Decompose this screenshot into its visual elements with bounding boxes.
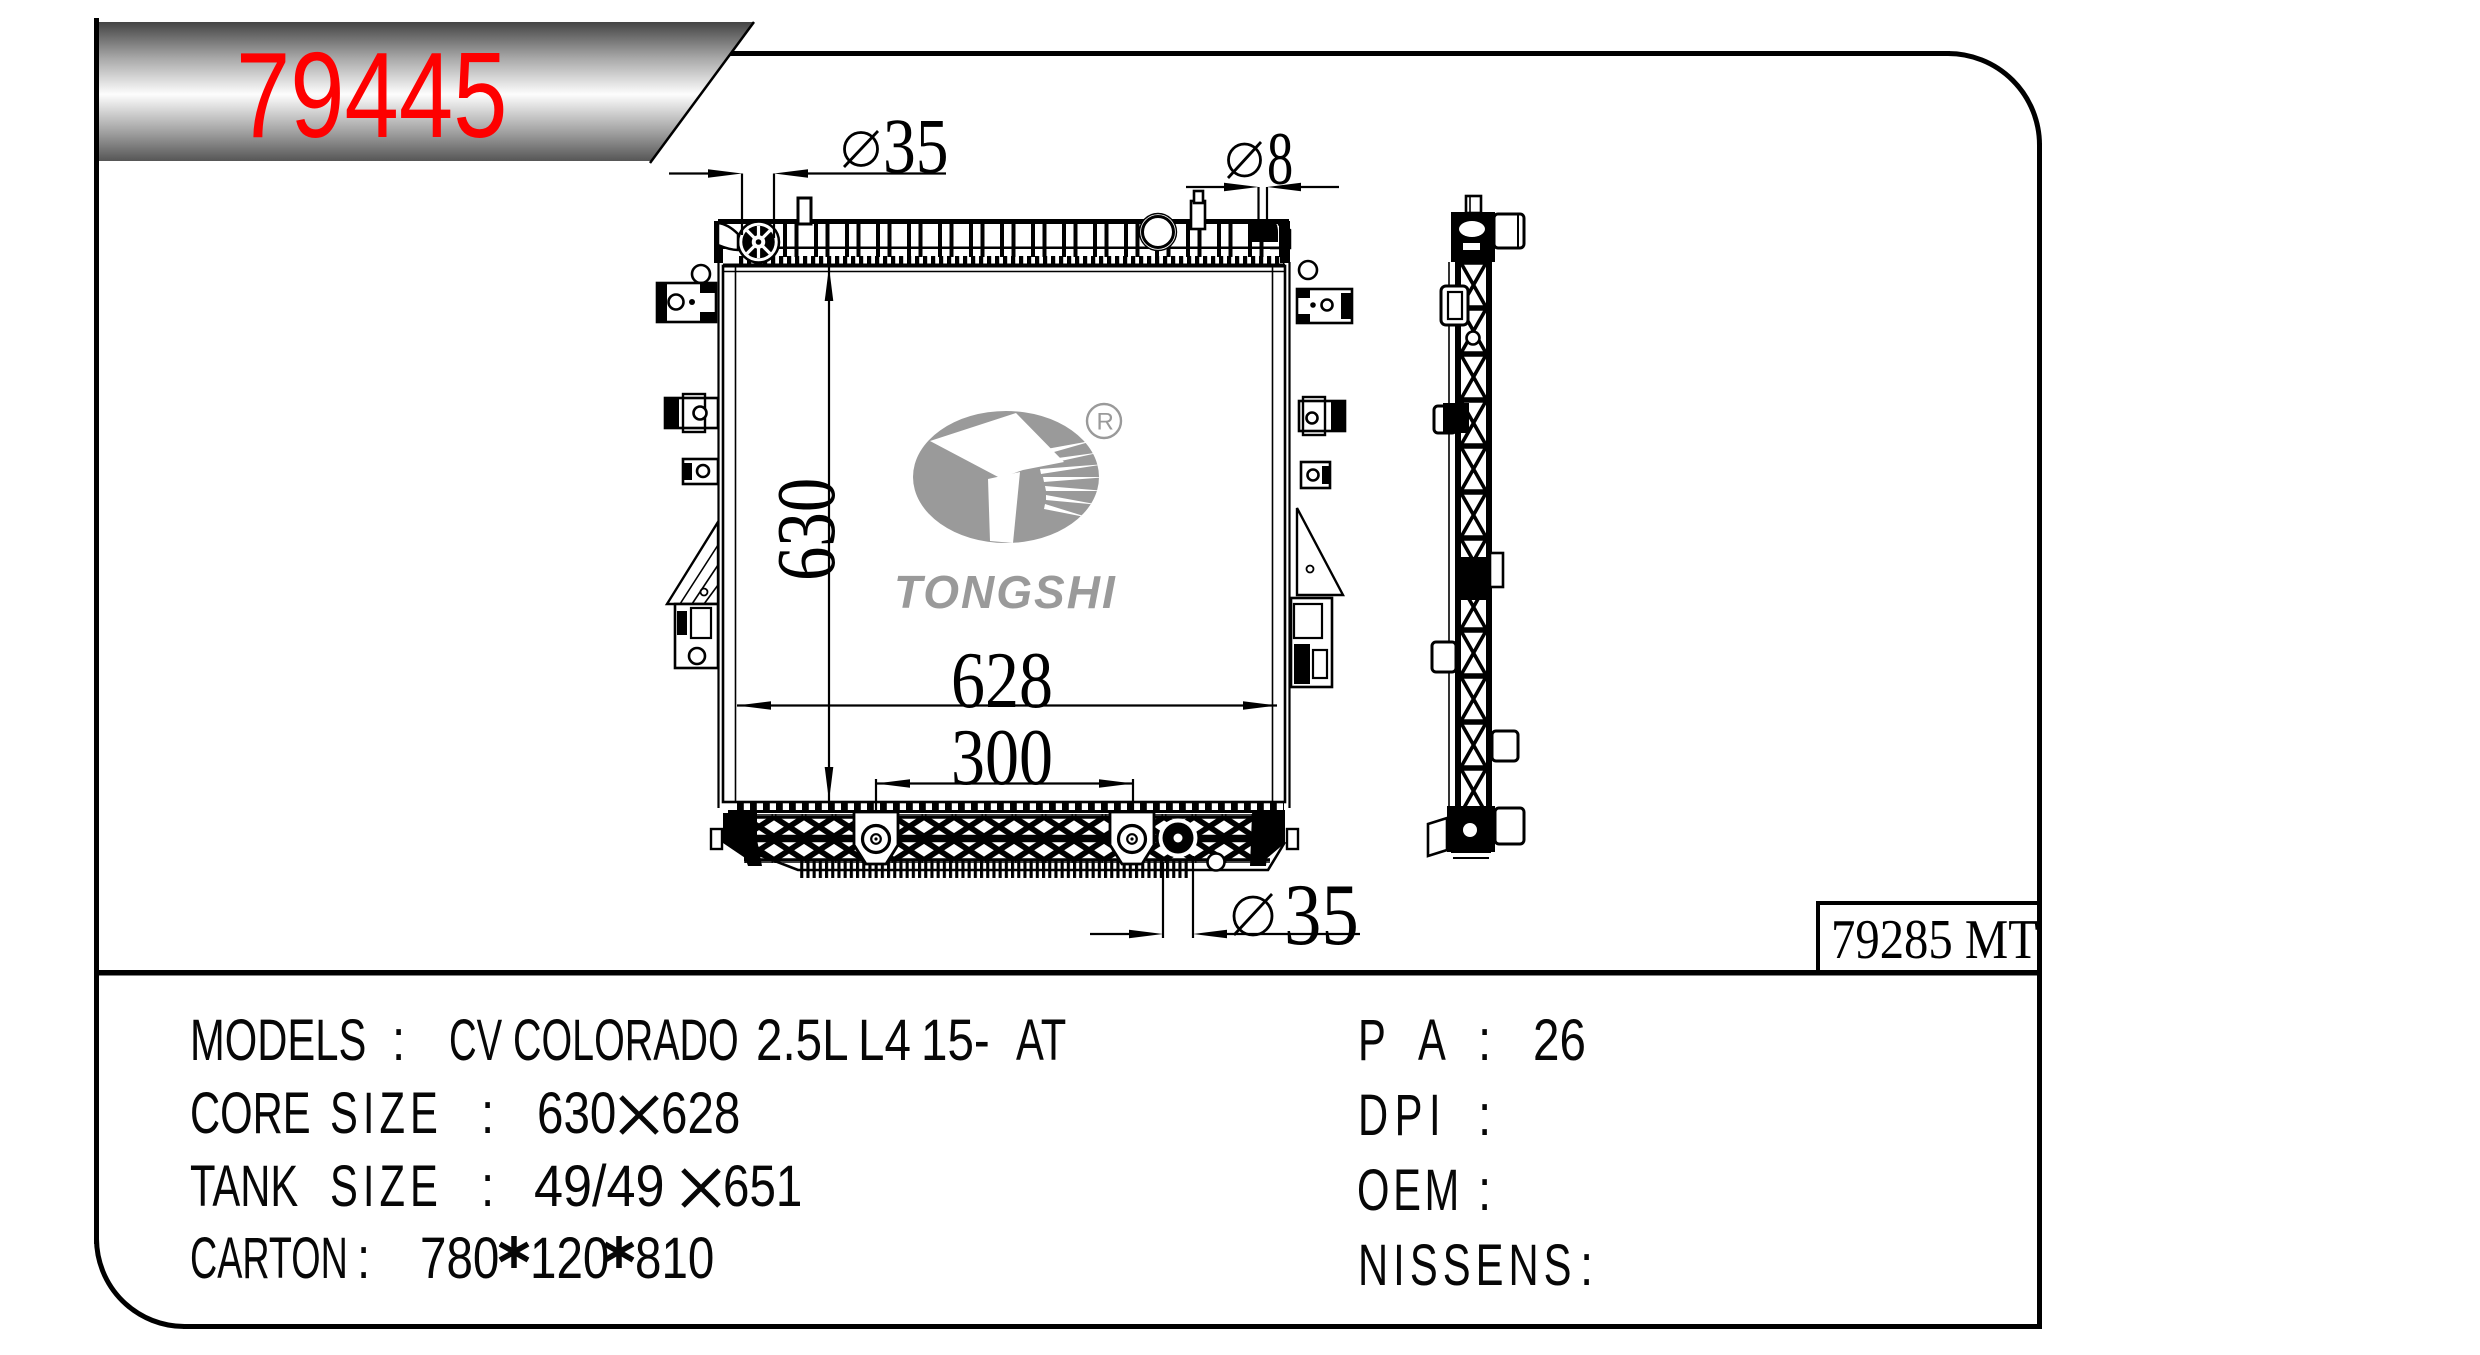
svg-text:8: 8 <box>1267 118 1293 201</box>
svg-text::: : <box>1580 1234 1593 1299</box>
svg-text:CARTON: CARTON <box>190 1227 348 1291</box>
svg-text:35: 35 <box>883 103 949 190</box>
svg-text::: : <box>481 1155 494 1220</box>
svg-text:P: P <box>1358 1007 1386 1072</box>
svg-text:79285 MT: 79285 MT <box>1831 909 2038 971</box>
svg-text:630: 630 <box>760 478 853 581</box>
svg-text:COLORADO: COLORADO <box>513 1007 739 1072</box>
svg-text:15-: 15- <box>921 1009 990 1074</box>
svg-text:TONGSHI: TONGSHI <box>894 566 1117 618</box>
svg-text:L4: L4 <box>858 1009 911 1074</box>
svg-text::: : <box>357 1227 370 1292</box>
svg-text:SIZE: SIZE <box>330 1153 443 1218</box>
svg-text:630: 630 <box>537 1082 616 1147</box>
svg-text:780: 780 <box>420 1227 499 1292</box>
svg-text:810: 810 <box>635 1227 714 1292</box>
svg-text:300: 300 <box>951 714 1053 802</box>
svg-text:AT: AT <box>1016 1007 1066 1072</box>
svg-text::: : <box>1478 1084 1491 1149</box>
svg-text:120: 120 <box>530 1227 609 1292</box>
svg-text:A: A <box>1418 1007 1446 1072</box>
svg-text:628: 628 <box>661 1082 740 1147</box>
svg-text::: : <box>481 1082 494 1147</box>
svg-text:OEM: OEM <box>1357 1157 1463 1222</box>
svg-text:628: 628 <box>951 637 1053 725</box>
svg-text::: : <box>1478 1009 1491 1074</box>
svg-text:26: 26 <box>1533 1009 1586 1074</box>
svg-text:TANK: TANK <box>190 1153 298 1218</box>
svg-text:651: 651 <box>723 1155 802 1220</box>
svg-text::: : <box>392 1009 405 1074</box>
svg-text:CV: CV <box>449 1009 502 1073</box>
svg-text:SIZE: SIZE <box>330 1080 443 1145</box>
svg-text:79445: 79445 <box>236 28 507 164</box>
svg-text:35: 35 <box>1284 865 1359 963</box>
svg-text:MODELS: MODELS <box>190 1007 366 1072</box>
svg-text:NISSENS: NISSENS <box>1358 1232 1577 1297</box>
svg-text:R: R <box>1097 409 1114 436</box>
svg-text:2.5L: 2.5L <box>756 1009 849 1074</box>
svg-text:CORE: CORE <box>190 1080 311 1145</box>
svg-text:49/49: 49/49 <box>534 1153 665 1218</box>
svg-text::: : <box>1478 1159 1491 1224</box>
svg-text:DPI: DPI <box>1358 1082 1447 1147</box>
